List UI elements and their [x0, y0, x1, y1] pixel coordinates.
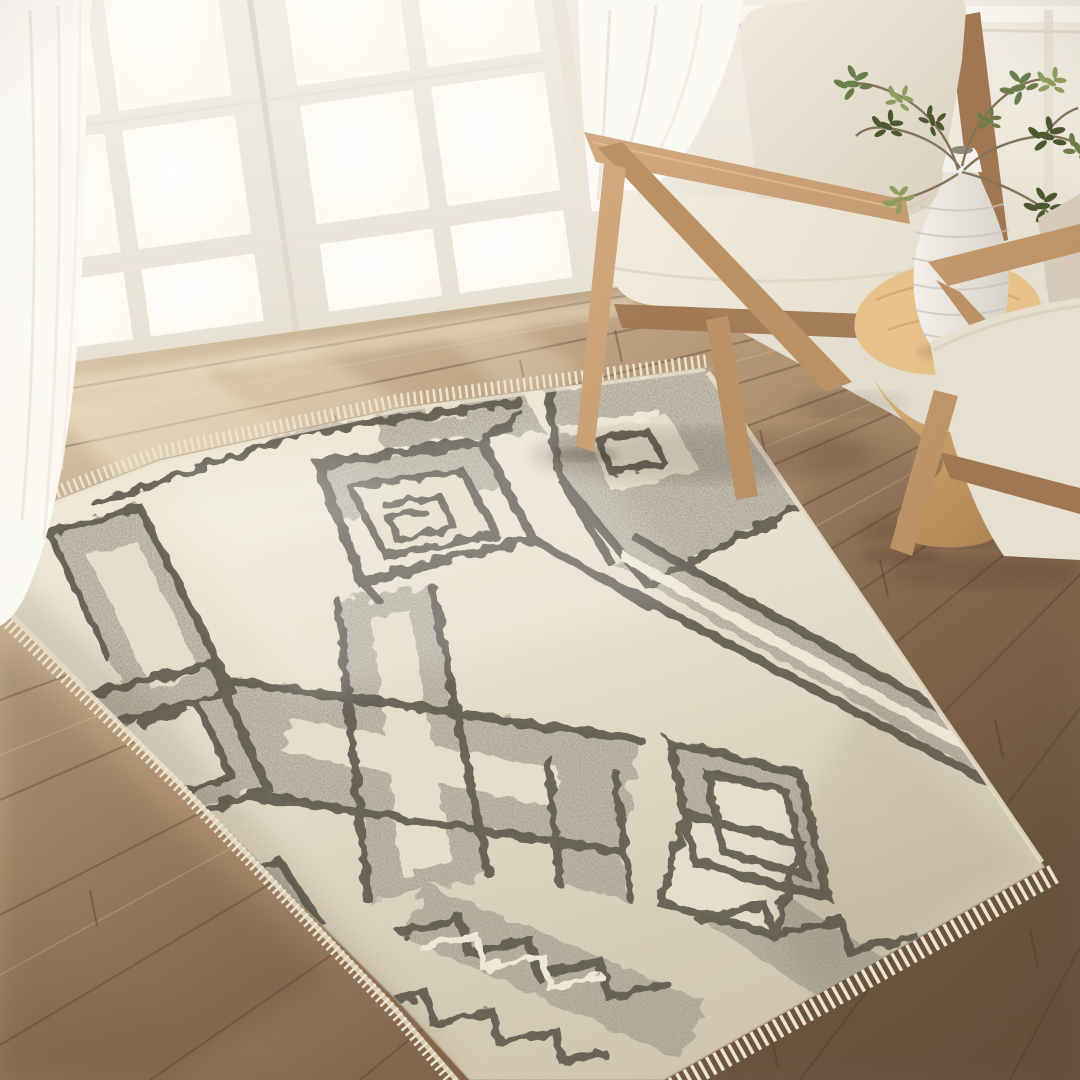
living-room-photo: Warm white paneled wall White french doo… — [0, 0, 1080, 1080]
vignette-overlay — [0, 0, 1080, 1080]
scene-svg: Warm white paneled wall White french doo… — [0, 0, 1080, 1080]
